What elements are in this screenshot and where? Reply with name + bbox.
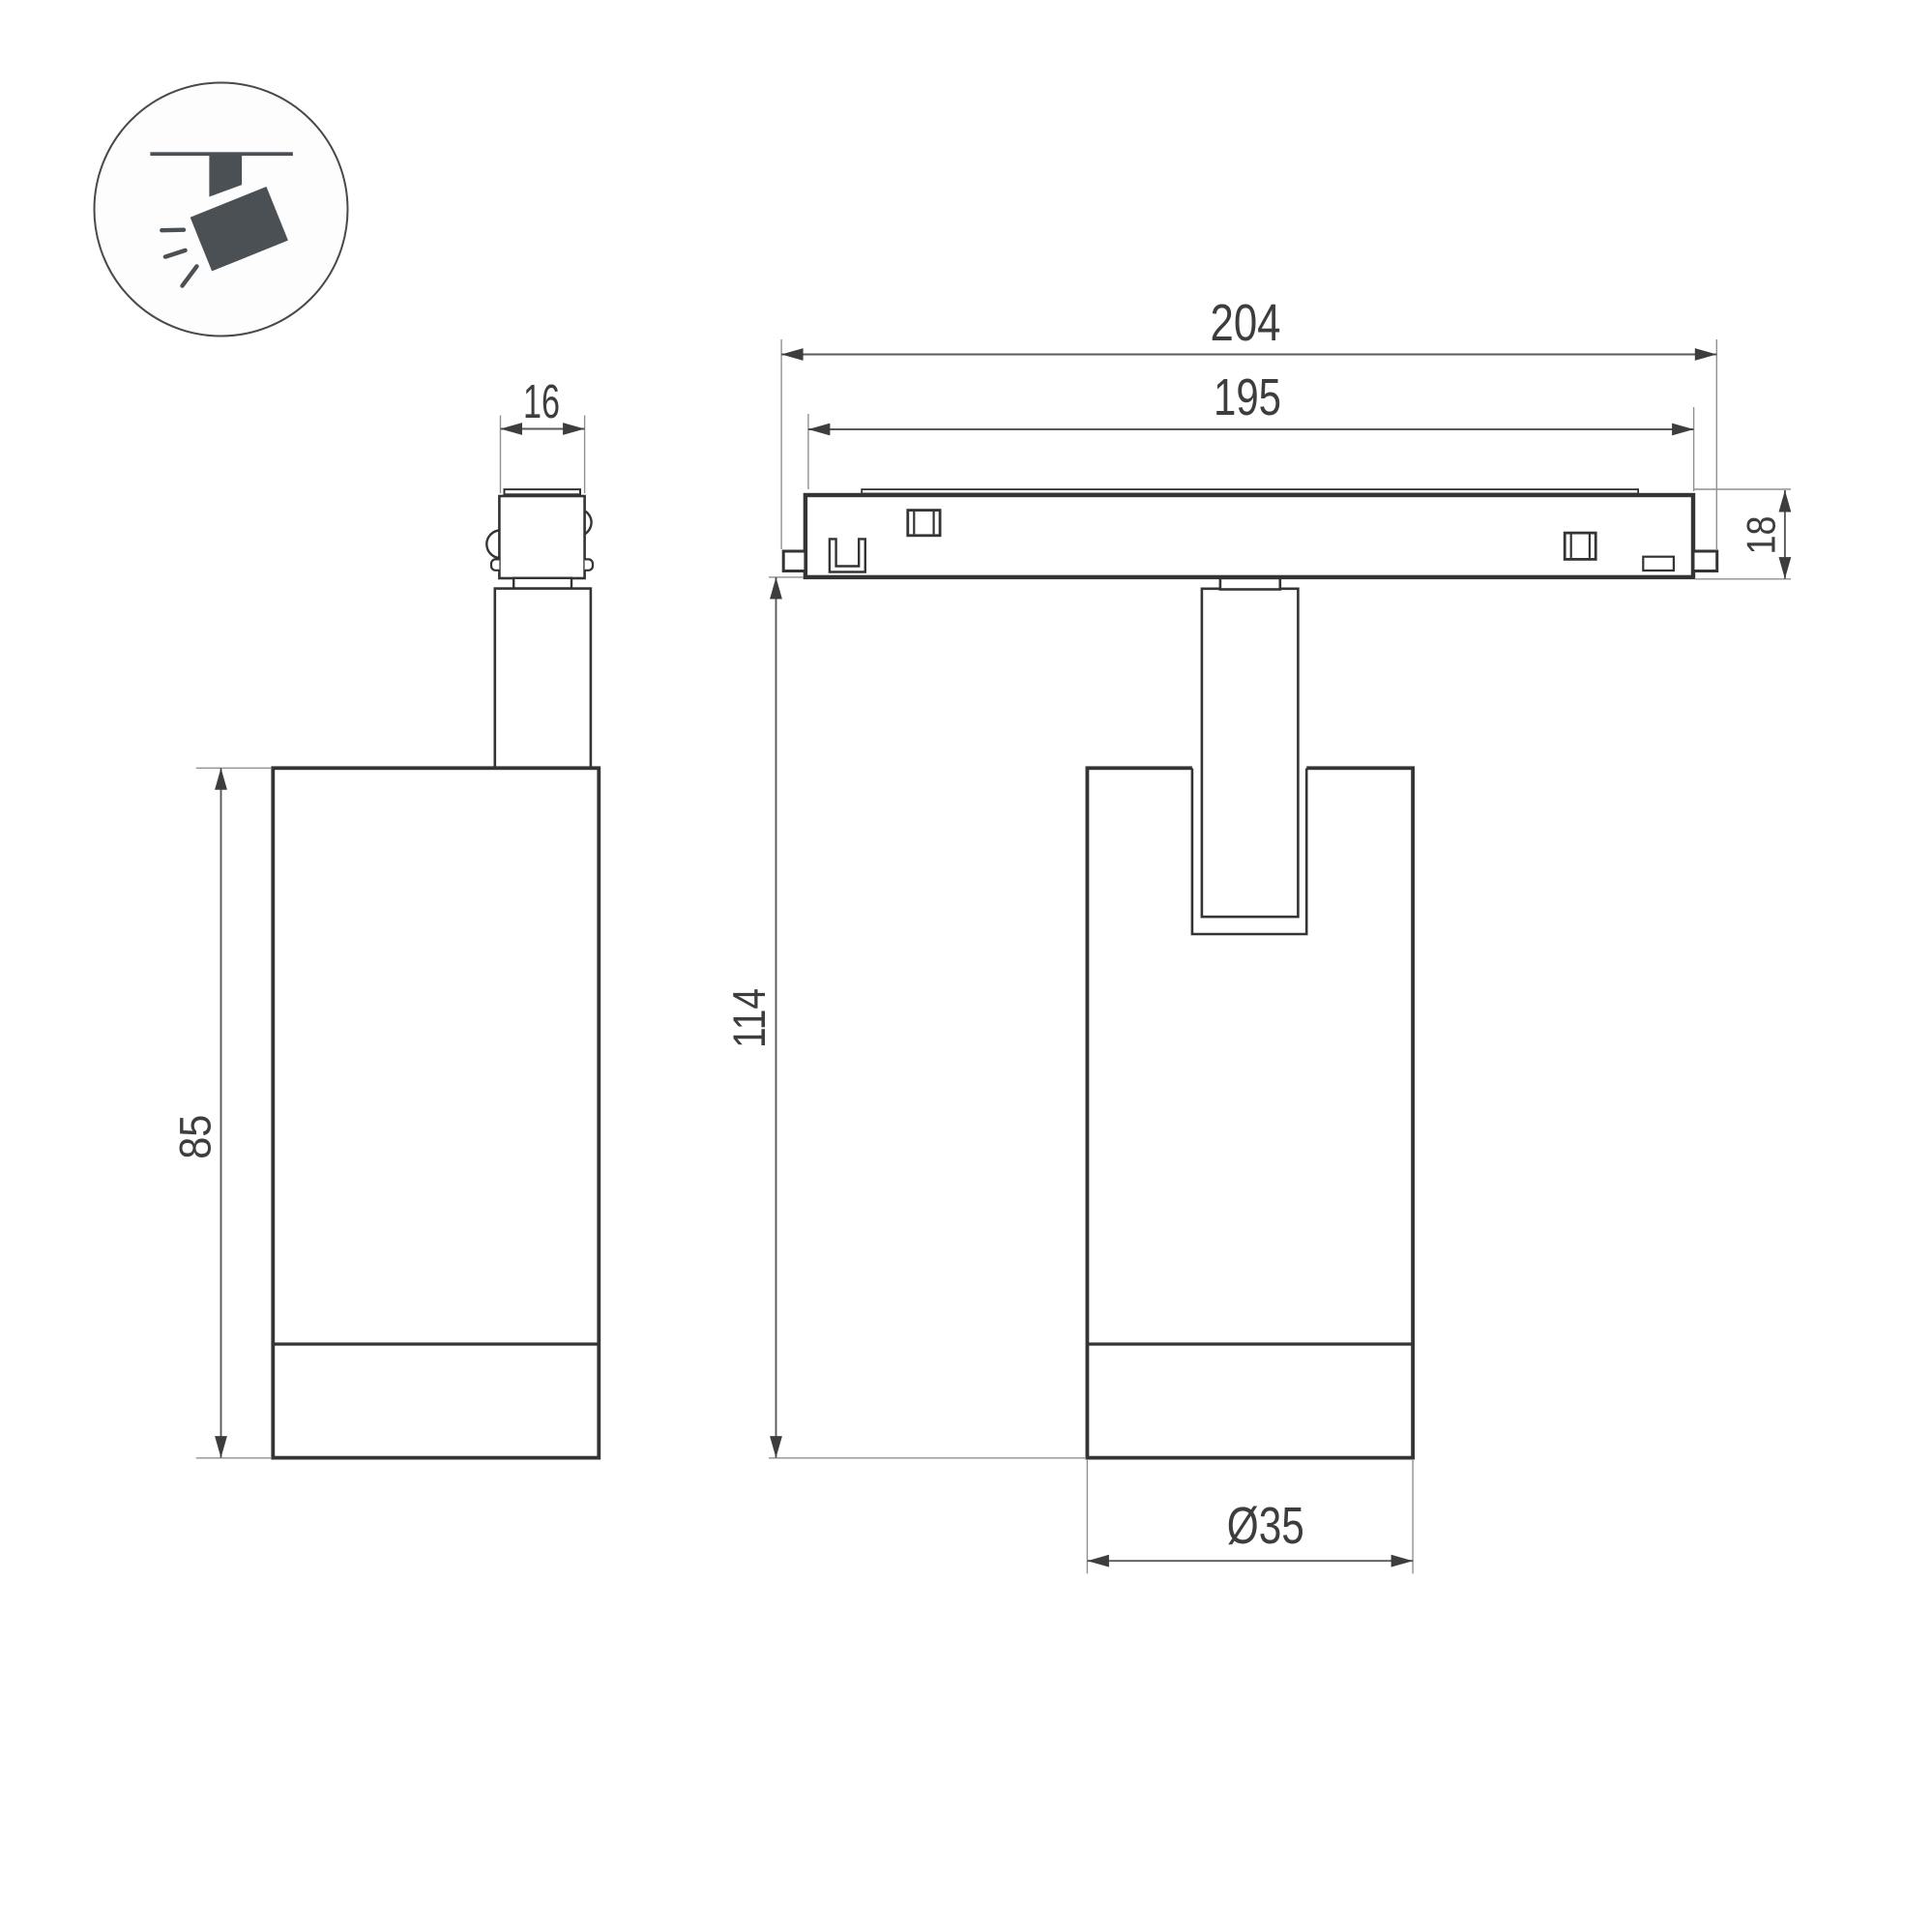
svg-text:85: 85 xyxy=(170,1115,220,1159)
svg-text:Ø35: Ø35 xyxy=(1227,1497,1304,1555)
svg-text:18: 18 xyxy=(1739,516,1784,555)
svg-text:114: 114 xyxy=(723,988,775,1048)
svg-text:16: 16 xyxy=(523,376,560,428)
svg-text:195: 195 xyxy=(1214,368,1281,426)
svg-text:204: 204 xyxy=(1211,294,1281,352)
